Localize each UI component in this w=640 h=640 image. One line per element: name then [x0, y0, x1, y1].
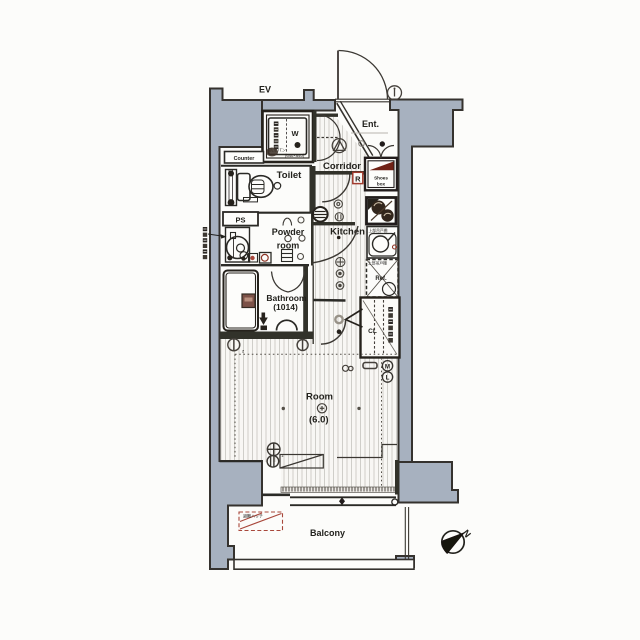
- svg-text:(1014): (1014): [273, 302, 298, 312]
- svg-text:Counter: Counter: [234, 156, 256, 162]
- svg-text:Room: Room: [306, 391, 333, 402]
- svg-text:Balcony: Balcony: [310, 528, 345, 538]
- svg-text:L: L: [386, 375, 390, 382]
- svg-text:Shoes: Shoes: [374, 176, 388, 181]
- svg-text:上部吊戸棚: 上部吊戸棚: [369, 228, 388, 233]
- svg-text:(6.0): (6.0): [309, 415, 329, 426]
- svg-text:Corridor: Corridor: [323, 161, 361, 172]
- svg-text:Ref.: Ref.: [375, 276, 387, 282]
- svg-text:Kitchen: Kitchen: [330, 226, 365, 237]
- svg-text:M: M: [385, 363, 390, 370]
- svg-text:Ent.: Ent.: [362, 119, 379, 129]
- svg-text:(640×640): (640×640): [285, 153, 305, 158]
- svg-text:R: R: [355, 174, 361, 183]
- svg-text:box: box: [377, 182, 386, 187]
- svg-text:Toilet: Toilet: [277, 170, 302, 181]
- svg-text:EV: EV: [259, 85, 271, 95]
- svg-text:上部吊戸棚: 上部吊戸棚: [368, 261, 387, 266]
- svg-text:W: W: [291, 129, 299, 138]
- svg-text:PS: PS: [235, 215, 245, 224]
- svg-text:CL: CL: [368, 328, 377, 335]
- svg-text:避難ハッチ: 避難ハッチ: [243, 513, 263, 519]
